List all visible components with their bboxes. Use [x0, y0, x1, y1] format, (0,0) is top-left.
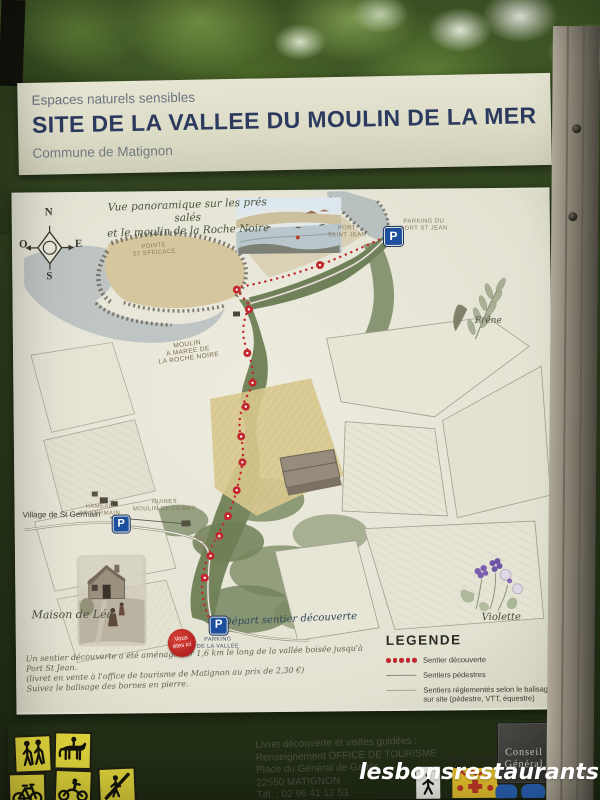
compass-north-label: N	[45, 206, 53, 218]
department-logo	[495, 784, 547, 800]
hikers-icon	[13, 734, 53, 774]
label-frene: Frêne	[475, 316, 502, 326]
restricted-use-icon	[97, 766, 137, 800]
legend-item-sentiers-pedestres: Sentiers pédestres	[386, 669, 554, 680]
legend: LEGENDE Sentier découverte Sentiers péde…	[386, 631, 555, 710]
label-maison-de-lea: Maison de Léa	[31, 608, 113, 622]
sign-commune: Commune de Matignon	[32, 136, 551, 161]
wooden-post-right	[546, 26, 600, 800]
map-label-port-saint-jean: PORTSAINT JEAN	[324, 225, 370, 239]
map-label-parking-port: PARKING DUPORT ST JEAN	[396, 218, 452, 233]
red-dots-symbol	[386, 656, 420, 665]
compass-west-label: O	[19, 238, 28, 250]
cycling-icon	[8, 773, 47, 800]
wooden-post-left	[0, 0, 25, 86]
map-label-maison-de-lea: MAISONDE LEA	[187, 537, 231, 551]
panorama-caption: Vue panoramique sur les prés salés et le…	[99, 196, 276, 241]
post-bolt	[568, 212, 577, 221]
post-bolt	[572, 124, 581, 133]
parking-icon-port: P	[384, 227, 403, 246]
map-label-ruines-moulin: RUINESMOULIN DE LA MER	[132, 499, 196, 514]
label-village-st-germain: Village de St Germain	[23, 510, 101, 520]
line-symbol	[386, 671, 420, 680]
sign-title: SITE DE LA VALLEE DU MOULIN DE LA MER	[32, 102, 551, 139]
sign-header-panel: Espaces naturels sensibles SITE DE LA VA…	[17, 73, 552, 175]
photo-watermark: lesbonsrestaurants	[359, 760, 599, 785]
photo-of-trail-sign: Espaces naturels sensibles SITE DE LA VA…	[0, 0, 600, 800]
parking-icon-village: P	[113, 515, 130, 532]
motorcycling-icon	[54, 769, 93, 800]
map-panel: N O E S Vue panoramique sur les prés sal…	[12, 187, 555, 714]
parking-icon-vallee: P	[210, 617, 228, 635]
compass-east-label: E	[75, 238, 82, 250]
line-symbol-alt	[386, 686, 420, 695]
legend-item-sentiers-reglementes: Sentiers réglementés selon le balisage s…	[386, 684, 554, 704]
legend-title: LEGENDE	[386, 631, 554, 648]
maison-de-lea-sketch	[77, 555, 147, 647]
horse-riding-icon	[54, 731, 93, 770]
label-violette: Violette	[482, 612, 521, 623]
compass-south-label: S	[46, 270, 52, 282]
legend-item-sentier-decouverte: Sentier découverte	[386, 654, 554, 665]
